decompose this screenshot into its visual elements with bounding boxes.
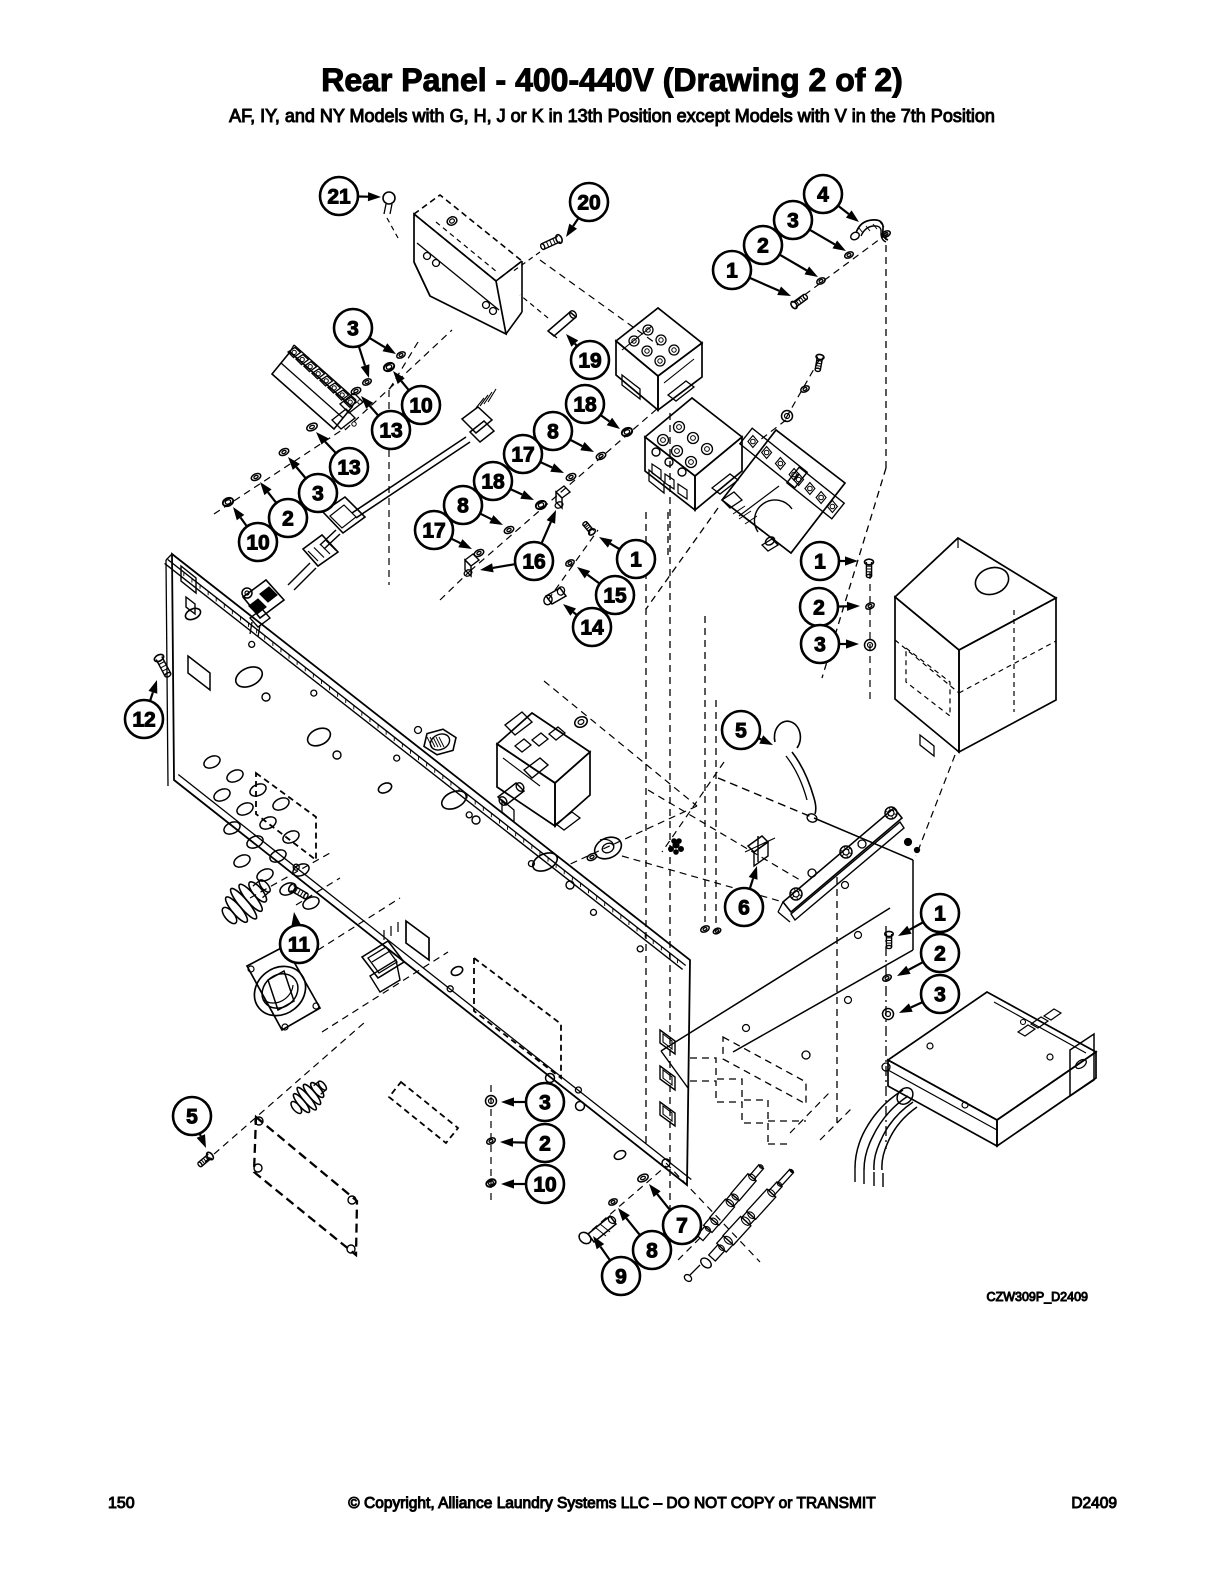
svg-text:3: 3 — [347, 318, 359, 341]
svg-text:21: 21 — [327, 186, 351, 209]
svg-text:18: 18 — [481, 471, 505, 494]
svg-text:1: 1 — [814, 551, 826, 574]
svg-text:14: 14 — [580, 617, 604, 640]
svg-text:2: 2 — [282, 508, 294, 531]
svg-text:10: 10 — [409, 395, 432, 418]
svg-text:15: 15 — [603, 585, 627, 608]
svg-text:19: 19 — [578, 350, 601, 373]
svg-text:1: 1 — [726, 260, 738, 283]
svg-text:AF, IY, and NY Models with G,: AF, IY, and NY Models with G, H, J or K … — [229, 106, 995, 126]
svg-text:17: 17 — [511, 444, 534, 467]
svg-text:150: 150 — [108, 1495, 135, 1512]
svg-text:3: 3 — [312, 483, 324, 506]
svg-text:9: 9 — [615, 1266, 627, 1289]
svg-text:8: 8 — [646, 1240, 658, 1263]
svg-text:6: 6 — [738, 897, 750, 920]
svg-text:5: 5 — [186, 1106, 198, 1129]
svg-text:2: 2 — [934, 943, 946, 966]
svg-text:10: 10 — [533, 1174, 556, 1197]
svg-text:2: 2 — [757, 235, 769, 258]
svg-text:3: 3 — [814, 634, 826, 657]
svg-text:4: 4 — [817, 184, 829, 207]
svg-text:8: 8 — [547, 421, 559, 444]
svg-text:8: 8 — [457, 495, 469, 518]
svg-text:10: 10 — [246, 532, 269, 555]
svg-text:3: 3 — [539, 1092, 551, 1115]
svg-text:1: 1 — [934, 903, 946, 926]
svg-text:13: 13 — [337, 457, 360, 480]
svg-text:2: 2 — [539, 1133, 551, 1156]
svg-text:11: 11 — [288, 934, 311, 957]
svg-text:7: 7 — [676, 1215, 688, 1238]
svg-text:18: 18 — [573, 394, 597, 417]
svg-text:5: 5 — [735, 720, 747, 743]
svg-text:13: 13 — [379, 420, 402, 443]
svg-text:Rear Panel - 400-440V (Drawing: Rear Panel - 400-440V (Drawing 2 of 2) — [321, 62, 903, 98]
svg-text:D2409: D2409 — [1071, 1495, 1117, 1512]
svg-text:2: 2 — [813, 597, 825, 620]
svg-text:17: 17 — [422, 520, 445, 543]
svg-text:3: 3 — [934, 984, 946, 1007]
svg-text:20: 20 — [577, 192, 600, 215]
svg-text:12: 12 — [132, 709, 155, 732]
svg-text:1: 1 — [630, 549, 642, 572]
svg-text:3: 3 — [787, 210, 799, 233]
svg-text:16: 16 — [522, 551, 545, 574]
svg-text:© Copyright, Alliance Laundry: © Copyright, Alliance Laundry Systems LL… — [348, 1495, 876, 1512]
svg-text:CZW309P_D2409: CZW309P_D2409 — [987, 1290, 1088, 1304]
